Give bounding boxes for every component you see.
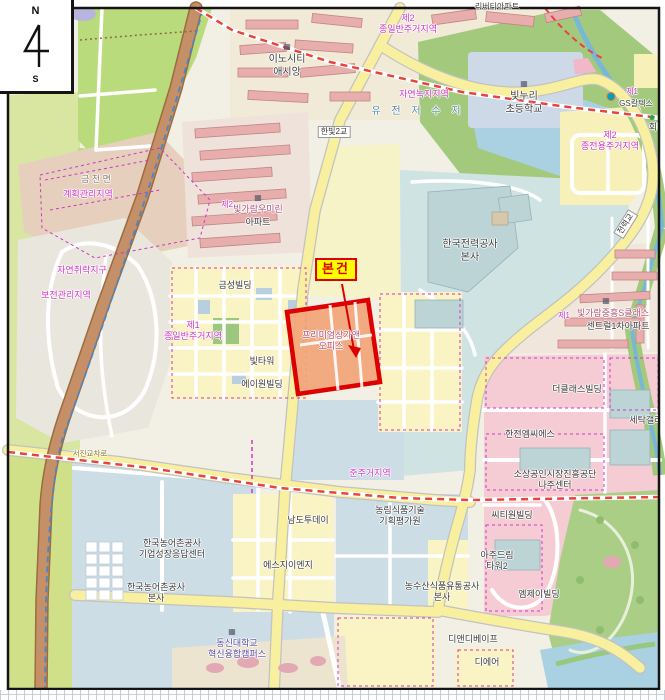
poi-namdo-today: 남도투데이 xyxy=(287,515,328,526)
poi-dnd-vape: 디앤디베이프 xyxy=(448,634,498,645)
poi-mj-bldg: 엠제이빌딩 xyxy=(518,589,559,600)
zone-1st-gs: 제1 xyxy=(626,87,638,97)
poi-nonglim-institute: 농림식품기술 기획평가원 xyxy=(375,505,425,528)
school-icon: ▦ xyxy=(520,79,528,89)
poi-setak-gallery: 세탁갤러리 xyxy=(629,415,658,426)
compass-arrow-icon xyxy=(21,23,51,69)
poi-cityone-bldg: 씨티원빌딩 xyxy=(491,510,532,521)
map-label-layer: 리버티아파트제2 종일반주거지역▦이노시티 애시앙▦빛누리 초등학교제1GS칼텍… xyxy=(0,0,658,688)
zone-1st-jungheung: 제1 xyxy=(558,311,570,321)
poi-bit-tower: 빛타워 xyxy=(250,356,275,367)
innocity-icon: ▦ xyxy=(283,42,291,52)
apt-umirin-suffix: 아파트 xyxy=(246,217,271,228)
poi-bitnuri-school: 빛누리 초등학교 xyxy=(506,91,543,116)
apt-liberty: 리버티아파트 xyxy=(475,2,519,12)
poi-theclass-bldg: 더클래스빌딩 xyxy=(552,384,602,395)
dongshin-icon: ▦ xyxy=(228,627,236,637)
zone-1st-general: 제1 종일반주거지역 xyxy=(164,320,222,343)
grid-ruler-strip xyxy=(0,690,665,700)
poi-kepco-hq: 한국전력공사 본사 xyxy=(442,239,497,264)
gs-logo-dot xyxy=(607,92,616,101)
green-dot xyxy=(650,115,655,120)
subject-parcel-name: 프리미엄상가앤 오피스 xyxy=(302,330,360,353)
zone-natural-settlement: 자연취락지구 xyxy=(57,265,107,276)
poi-sosang-center: 소상공인시장진흥공단 나주센터 xyxy=(514,469,597,492)
zone-natural-green: 자연녹지지역 xyxy=(399,89,449,100)
apt-umirin: 빛가람우미린 xyxy=(233,204,283,215)
bridge-jeonryeok: 전력교 xyxy=(613,209,638,239)
zone-2nd-exclusive: 제2 종전용주거지역 xyxy=(581,130,639,153)
zone-plan-mgmt: 계획관리지역 xyxy=(63,189,113,200)
north-arrow: N S xyxy=(0,0,74,94)
zone-preservation: 보전관리지역 xyxy=(41,290,91,301)
map-canvas: 리버티아파트제2 종일반주거지역▦이노시티 애시앙▦빛누리 초등학교제1GS칼텍… xyxy=(0,0,665,700)
south-label: S xyxy=(32,74,38,84)
poi-krc-hq: 한국농어촌공사 본사 xyxy=(127,582,185,605)
poi-dongshin-univ: 동신대학교 혁신융합캠퍼스 xyxy=(208,638,266,661)
poi-sg-eng: 에스지이엔지 xyxy=(263,560,313,571)
poi-geumseong-bldg: 금성빌딩 xyxy=(218,280,251,291)
umirin-icon: ▦ xyxy=(254,193,262,203)
road-seojin-ix: 서진교차로 xyxy=(73,449,108,458)
poi-ajudream-tower: 아주드림 타워2 xyxy=(480,550,513,573)
poi-hoedae: 회대 xyxy=(649,122,658,133)
jungheung-icon: ▦ xyxy=(602,296,610,306)
apt-jungheung-sclass: 빛가람중흥S클래스 xyxy=(577,308,649,319)
place-geumcheon: 금 천 면 xyxy=(81,174,111,185)
poi-gs-caltex: GS칼텍스 xyxy=(619,99,653,109)
poi-innocity-assiang: 이노시티 애시앙 xyxy=(269,54,306,79)
poi-deair: 디에어 xyxy=(475,657,500,668)
zone-2nd-general-top: 제2 종일반주거지역 xyxy=(379,13,437,36)
zone-semi-residential: 준주거지역 xyxy=(349,468,390,479)
apt-jungheung-central: 센트럴1차아파트 xyxy=(587,321,650,332)
north-label: N xyxy=(32,5,40,17)
water-yujeon-reservoir: 유 전 저 수 지 xyxy=(371,106,464,119)
poi-at-corp: 농수산식품유통공사 본사 xyxy=(405,581,480,604)
poi-krc-growth-center: 한국농어촌공사 기업성장응답센터 xyxy=(139,538,205,561)
poi-kepco-mcs: 한전엠씨에스 xyxy=(505,429,555,440)
subject-tag: 본건 xyxy=(315,258,357,281)
bridge-hanbit2: 한빛2교 xyxy=(318,126,351,138)
zone-2nd-umirin: 제2 xyxy=(221,200,233,210)
poi-a-one-bldg: 에이원빌딩 xyxy=(241,379,282,390)
